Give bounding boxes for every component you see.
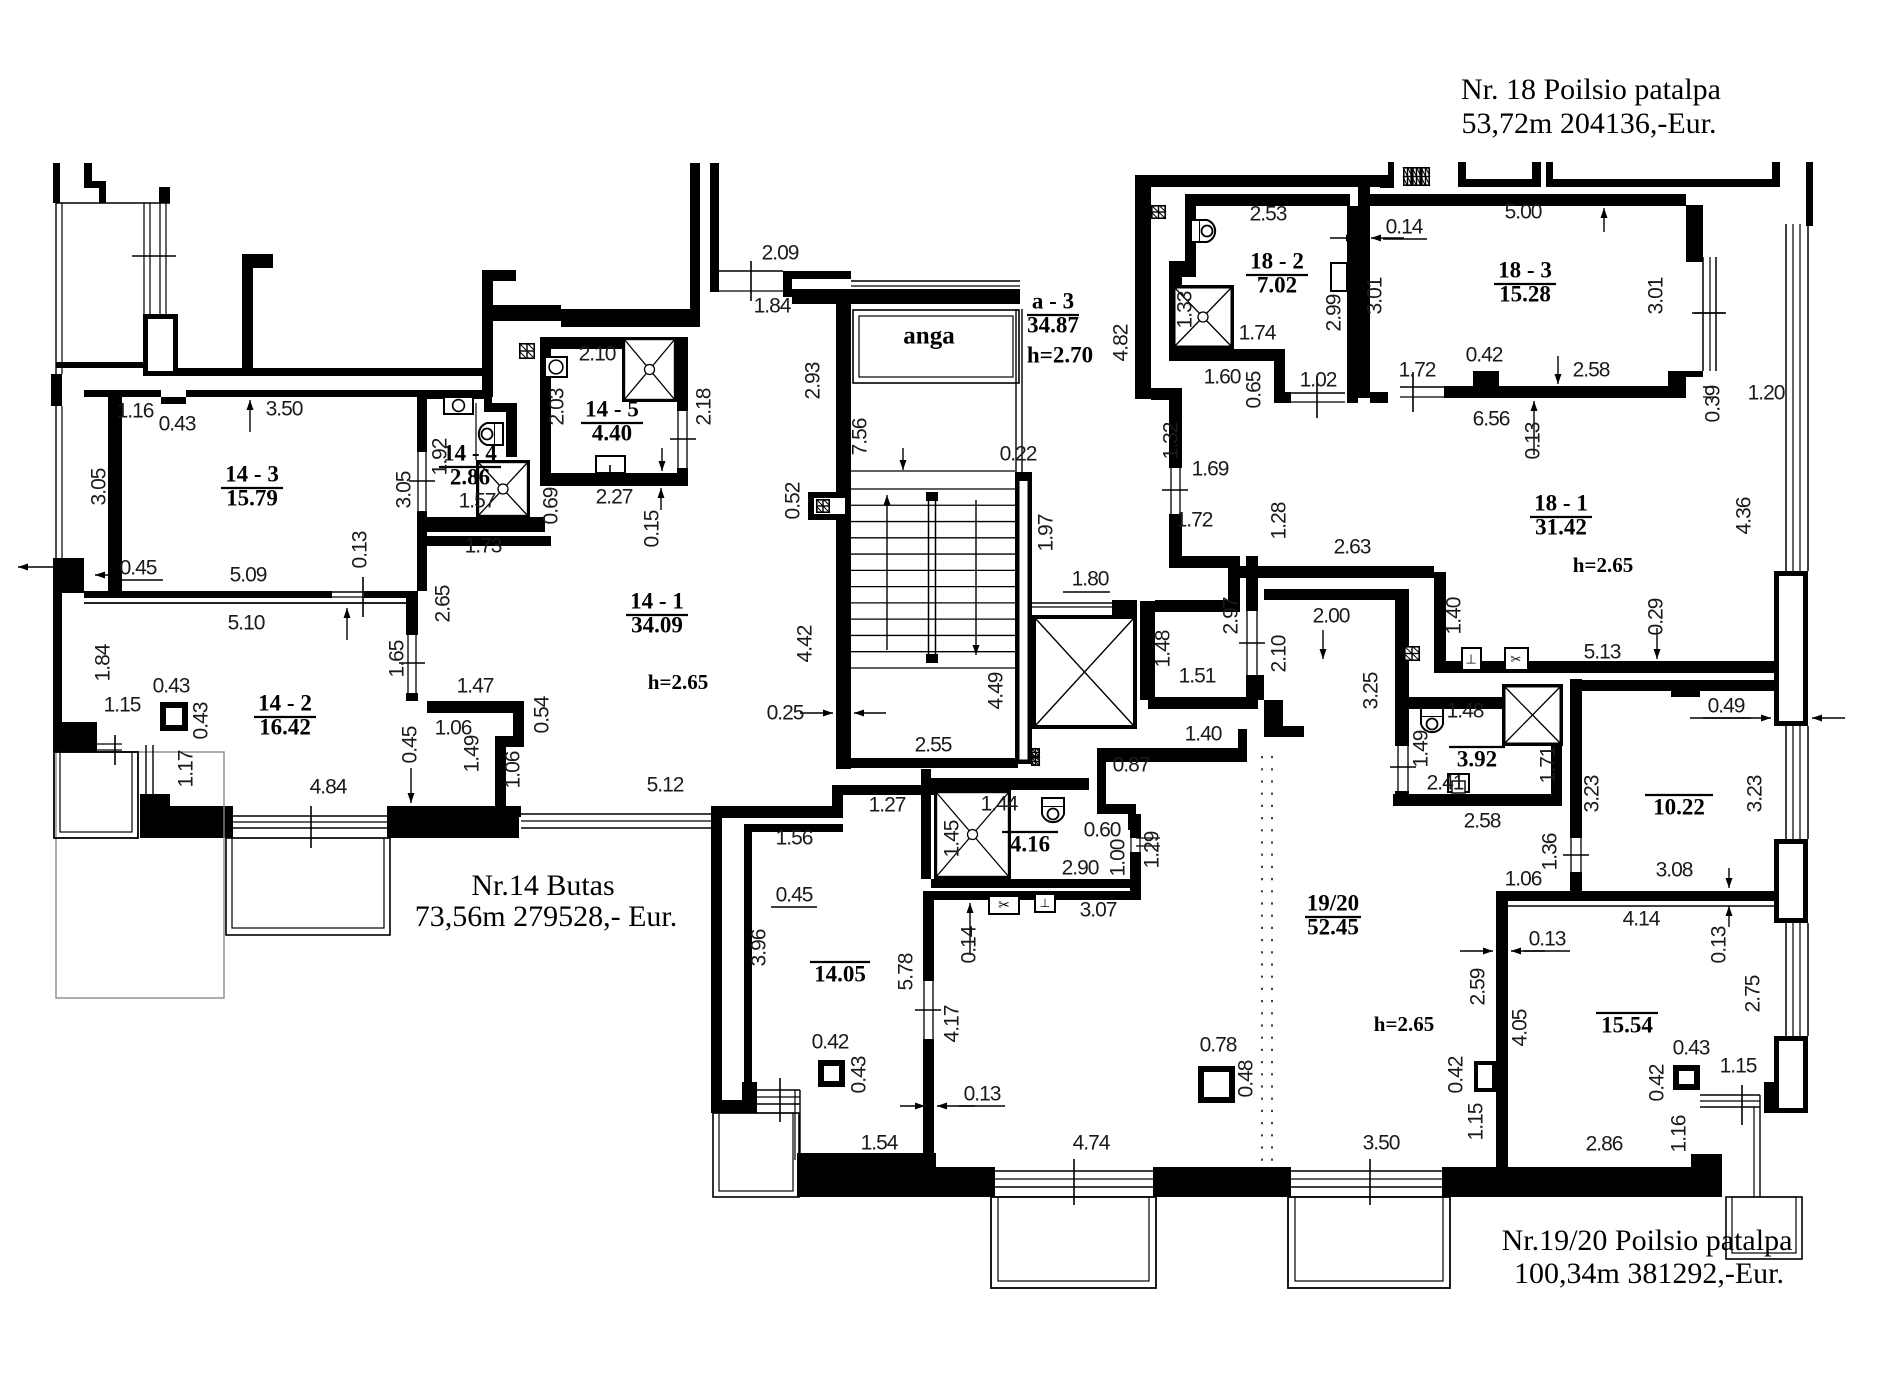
svg-text:3.50: 3.50 — [266, 398, 303, 421]
svg-text:1.92: 1.92 — [429, 438, 452, 475]
svg-text:0.69: 0.69 — [540, 487, 563, 524]
svg-text:14 - 5: 14 - 5 — [585, 396, 639, 421]
svg-text:0.42: 0.42 — [1466, 344, 1503, 367]
svg-text:0.39: 0.39 — [1702, 385, 1725, 422]
svg-text:0.60: 0.60 — [1084, 819, 1121, 842]
svg-text:anga: anga — [903, 323, 955, 350]
svg-text:✂: ✂ — [998, 897, 1010, 913]
svg-text:2.97: 2.97 — [1220, 597, 1243, 634]
svg-text:1.60: 1.60 — [1204, 366, 1241, 389]
svg-text:2.00: 2.00 — [1313, 605, 1350, 628]
svg-text:1.15: 1.15 — [1720, 1055, 1757, 1078]
svg-text:0.13: 0.13 — [1708, 926, 1731, 963]
svg-text:3.23: 3.23 — [1744, 775, 1767, 812]
svg-text:14.05: 14.05 — [814, 961, 866, 986]
svg-text:1.84: 1.84 — [754, 295, 792, 318]
svg-text:0.42: 0.42 — [1445, 1056, 1468, 1093]
svg-text:⊥: ⊥ — [1040, 896, 1050, 910]
svg-text:1.47: 1.47 — [457, 675, 494, 698]
svg-text:5.09: 5.09 — [230, 564, 267, 587]
svg-text:1.49: 1.49 — [1410, 730, 1433, 767]
svg-text:1.73: 1.73 — [465, 535, 502, 558]
svg-text:1.00: 1.00 — [1107, 839, 1130, 876]
svg-text:⊥: ⊥ — [1465, 651, 1476, 666]
svg-text:0.13: 0.13 — [1522, 422, 1545, 459]
svg-text:1.54: 1.54 — [861, 1132, 899, 1155]
svg-text:0.87: 0.87 — [1113, 754, 1150, 777]
svg-text:3.07: 3.07 — [1080, 899, 1117, 922]
svg-text:1.69: 1.69 — [1192, 458, 1229, 481]
svg-text:2.65: 2.65 — [432, 585, 455, 622]
svg-text:1.71: 1.71 — [1537, 746, 1560, 783]
svg-text:2.53: 2.53 — [1250, 203, 1287, 226]
svg-text:4.14: 4.14 — [1623, 908, 1661, 931]
svg-text:6.56: 6.56 — [1473, 408, 1510, 431]
svg-text:0.48: 0.48 — [1235, 1060, 1258, 1097]
svg-text:2.86: 2.86 — [1586, 1133, 1623, 1156]
svg-text:1.36: 1.36 — [1539, 833, 1562, 870]
svg-text:2.27: 2.27 — [596, 486, 633, 509]
svg-text:2.58: 2.58 — [1573, 359, 1610, 382]
svg-text:1.27: 1.27 — [869, 794, 906, 817]
svg-text:1.72: 1.72 — [1176, 509, 1213, 532]
svg-text:3.08: 3.08 — [1656, 859, 1693, 882]
svg-text:0.14: 0.14 — [1386, 216, 1424, 239]
svg-text:1.17: 1.17 — [175, 750, 198, 787]
svg-text:100,34m 381292,-Eur.: 100,34m 381292,-Eur. — [1514, 1257, 1784, 1290]
svg-text:4.16: 4.16 — [1010, 831, 1050, 856]
svg-text:0.43: 0.43 — [848, 1056, 871, 1093]
svg-text:0.52: 0.52 — [782, 482, 805, 519]
svg-text:0.13: 0.13 — [1529, 928, 1566, 951]
svg-text:h=2.65: h=2.65 — [1573, 553, 1633, 577]
svg-text:2.63: 2.63 — [1334, 536, 1371, 559]
svg-text:1.48: 1.48 — [1152, 630, 1175, 667]
svg-text:0.78: 0.78 — [1200, 1034, 1237, 1057]
svg-text:1.40: 1.40 — [1443, 597, 1466, 634]
svg-text:1.20: 1.20 — [1748, 382, 1785, 405]
svg-text:14 - 3: 14 - 3 — [225, 461, 279, 486]
svg-text:2.58: 2.58 — [1464, 810, 1501, 833]
svg-text:5.13: 5.13 — [1584, 641, 1621, 664]
svg-text:1.28: 1.28 — [1268, 502, 1291, 539]
svg-text:0.43: 0.43 — [1673, 1037, 1710, 1060]
svg-text:0.42: 0.42 — [1646, 1064, 1669, 1101]
svg-text:2.99: 2.99 — [1323, 294, 1346, 331]
svg-text:✂: ✂ — [1511, 651, 1522, 666]
svg-text:1.84: 1.84 — [92, 643, 115, 681]
svg-text:3.96: 3.96 — [748, 929, 771, 966]
svg-text:10.22: 10.22 — [1653, 794, 1705, 819]
svg-text:4.82: 4.82 — [1110, 324, 1133, 361]
svg-text:1.02: 1.02 — [1300, 369, 1337, 392]
svg-text:2.90: 2.90 — [1062, 857, 1099, 880]
svg-text:14 - 2: 14 - 2 — [258, 690, 312, 715]
svg-text:0.49: 0.49 — [1708, 695, 1745, 718]
svg-text:2.75: 2.75 — [1742, 975, 1765, 1012]
svg-text:4.74: 4.74 — [1073, 1132, 1111, 1155]
svg-text:1.06: 1.06 — [502, 751, 525, 788]
svg-text:1.57: 1.57 — [459, 490, 496, 513]
svg-text:2.10: 2.10 — [579, 343, 616, 366]
svg-text:1.45: 1.45 — [941, 820, 964, 857]
svg-text:2.09: 2.09 — [762, 242, 799, 265]
svg-text:1.74: 1.74 — [1239, 322, 1277, 345]
svg-text:4.42: 4.42 — [794, 625, 817, 662]
svg-text:5.00: 5.00 — [1505, 201, 1542, 224]
svg-text:53,72m 204136,-Eur.: 53,72m 204136,-Eur. — [1462, 107, 1717, 140]
svg-text:1.80: 1.80 — [1072, 568, 1109, 591]
svg-text:4.17: 4.17 — [941, 1005, 964, 1042]
svg-text:h=2.65: h=2.65 — [1374, 1012, 1434, 1036]
svg-text:Nr.19/20 Poilsio patalpa: Nr.19/20 Poilsio patalpa — [1502, 1224, 1793, 1257]
svg-text:2.41: 2.41 — [1427, 772, 1464, 795]
svg-text:h=2.65: h=2.65 — [648, 670, 708, 694]
svg-text:7.56: 7.56 — [849, 418, 872, 455]
svg-text:1.65: 1.65 — [386, 640, 409, 677]
svg-text:1.56: 1.56 — [776, 827, 813, 850]
svg-text:4.49: 4.49 — [985, 672, 1008, 709]
svg-text:1.15: 1.15 — [104, 694, 141, 717]
svg-text:5.78: 5.78 — [895, 953, 918, 990]
svg-text:2.10: 2.10 — [1268, 635, 1291, 672]
svg-text:5.10: 5.10 — [228, 612, 265, 635]
svg-text:3.05: 3.05 — [393, 471, 416, 508]
svg-text:3.01: 3.01 — [1364, 277, 1387, 314]
svg-text:18 - 2: 18 - 2 — [1250, 248, 1304, 273]
svg-text:0.45: 0.45 — [399, 726, 422, 763]
svg-text:3.01: 3.01 — [1645, 277, 1668, 314]
svg-text:4.05: 4.05 — [1509, 1009, 1532, 1046]
svg-text:5.12: 5.12 — [647, 774, 684, 797]
svg-text:0.15: 0.15 — [641, 510, 664, 547]
svg-text:1.97: 1.97 — [1035, 514, 1058, 551]
svg-text:0.29: 0.29 — [1645, 598, 1668, 635]
svg-text:2.18: 2.18 — [693, 388, 716, 425]
svg-text:Nr. 18 Poilsio patalpa: Nr. 18 Poilsio patalpa — [1461, 73, 1721, 106]
svg-text:2.93: 2.93 — [802, 362, 825, 399]
svg-text:1.16: 1.16 — [1668, 1115, 1691, 1152]
svg-text:2.03: 2.03 — [546, 388, 569, 425]
svg-text:3.92: 3.92 — [1457, 746, 1497, 771]
svg-text:0.43: 0.43 — [153, 675, 190, 698]
svg-text:1.49: 1.49 — [461, 735, 484, 772]
svg-text:15.54: 15.54 — [1601, 1012, 1653, 1037]
svg-text:1.48: 1.48 — [1447, 700, 1484, 723]
svg-text:0.54: 0.54 — [531, 695, 554, 733]
svg-text:1.40: 1.40 — [1185, 723, 1222, 746]
svg-text:0.42: 0.42 — [812, 1031, 849, 1054]
svg-text:1.33: 1.33 — [1174, 291, 1197, 328]
svg-text:0.13: 0.13 — [964, 1083, 1001, 1106]
svg-text:2.59: 2.59 — [1467, 968, 1490, 1005]
svg-text:3.50: 3.50 — [1363, 1132, 1400, 1155]
svg-text:1.15: 1.15 — [1465, 1103, 1488, 1140]
svg-text:1.72: 1.72 — [1399, 359, 1436, 382]
svg-text:0.43: 0.43 — [159, 413, 196, 436]
svg-text:18 - 1: 18 - 1 — [1534, 490, 1588, 515]
svg-text:0.45: 0.45 — [776, 884, 813, 907]
svg-text:14 - 1: 14 - 1 — [630, 588, 684, 613]
svg-text:0.65: 0.65 — [1243, 371, 1266, 408]
svg-text:0.43: 0.43 — [190, 702, 213, 739]
svg-text:4.84: 4.84 — [310, 776, 348, 799]
svg-text:0.13: 0.13 — [349, 531, 372, 568]
svg-text:a - 3: a - 3 — [1032, 288, 1074, 313]
svg-text:3.05: 3.05 — [88, 468, 111, 505]
svg-text:1.51: 1.51 — [1179, 665, 1216, 688]
svg-text:18 - 3: 18 - 3 — [1498, 257, 1552, 282]
svg-text:19/20: 19/20 — [1307, 890, 1359, 915]
svg-text:0.14: 0.14 — [958, 925, 981, 963]
svg-text:3.25: 3.25 — [1360, 672, 1383, 709]
svg-text:4.36: 4.36 — [1733, 497, 1756, 534]
svg-text:1.06: 1.06 — [1505, 868, 1542, 891]
svg-text:h=2.70: h=2.70 — [1027, 342, 1093, 367]
svg-text:1.16: 1.16 — [117, 400, 154, 423]
svg-text:0.22: 0.22 — [1000, 443, 1037, 466]
svg-text:0.25: 0.25 — [767, 702, 804, 725]
svg-text:1.44: 1.44 — [981, 793, 1019, 816]
svg-text:2.55: 2.55 — [915, 734, 952, 757]
svg-text:Nr.14 Butas: Nr.14 Butas — [471, 869, 614, 902]
svg-text:1.32: 1.32 — [1160, 422, 1183, 459]
svg-text:0.45: 0.45 — [120, 557, 157, 580]
svg-text:1.29: 1.29 — [1141, 831, 1164, 868]
svg-text:73,56m 279528,- Eur.: 73,56m 279528,- Eur. — [415, 900, 678, 933]
svg-text:3.23: 3.23 — [1581, 775, 1604, 812]
